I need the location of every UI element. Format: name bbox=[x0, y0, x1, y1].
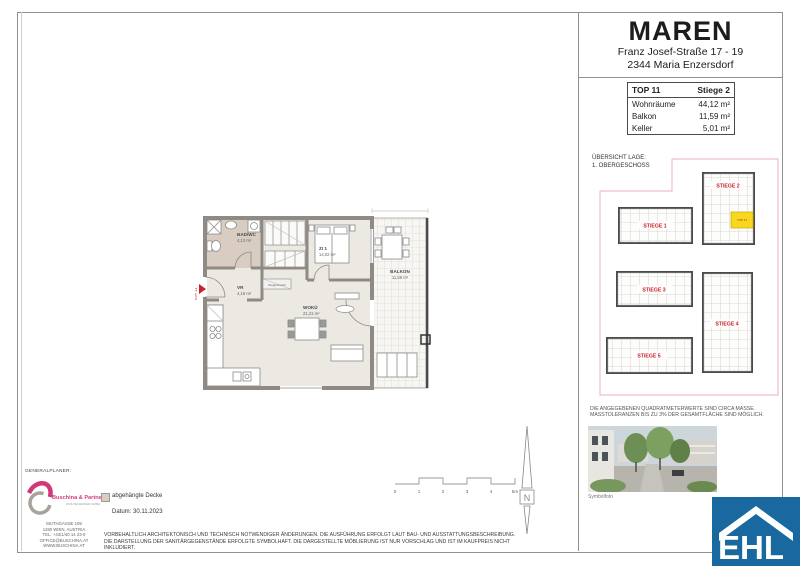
sheet-frame-inner-line bbox=[21, 12, 22, 551]
photo-caption: Symbolfoto bbox=[588, 494, 613, 500]
disclaimer-line2: DIE DARSTELLUNG DER SANITÄRGEGENSTÄNDE E… bbox=[104, 539, 534, 552]
unit-table-row: Wohnräume 44,12 m² bbox=[628, 98, 734, 110]
disclaimer-line1: VORBEHALTLICH ARCHITEKTONISCH UND TECHNI… bbox=[104, 532, 534, 539]
floor-plan: Steigschacht bbox=[195, 205, 440, 400]
room-area: 4,13 m² bbox=[237, 238, 252, 243]
svg-text:4: 4 bbox=[490, 489, 493, 494]
unit-table-header: TOP 11 Stiege 2 bbox=[628, 83, 734, 98]
building-label: STIEGE 2 bbox=[716, 184, 739, 190]
building-label: STIEGE 3 bbox=[642, 288, 665, 294]
symbol-photo bbox=[588, 426, 717, 492]
unit-stiege: Stiege 2 bbox=[697, 85, 730, 95]
sideboard bbox=[335, 293, 359, 299]
building-stiege-4: STIEGE 4 bbox=[703, 273, 752, 372]
building-stiege-5: STIEGE 5 bbox=[607, 338, 692, 373]
shaft: Steigschacht bbox=[263, 279, 291, 289]
company-name: Buschina & Partner bbox=[52, 495, 104, 501]
building-stiege-2: TOP 11 STIEGE 2 bbox=[703, 173, 754, 244]
wardrobes bbox=[265, 221, 305, 267]
washbasin bbox=[226, 221, 237, 229]
title-block-rule bbox=[579, 77, 783, 78]
unit-table-row: Keller 5,01 m² bbox=[628, 122, 734, 134]
room-area: 4,16 m² bbox=[237, 291, 252, 296]
unit-table-row: Balkon 11,59 m² bbox=[628, 110, 734, 122]
room-name: BAD/WC bbox=[237, 232, 257, 237]
room-name: WOKÜ bbox=[303, 304, 318, 310]
site-plan-overview: TOP 11 STIEGE 2 STIEGE 1 STIEGE 3 STIEGE… bbox=[588, 153, 783, 403]
area-note: DIE ANGEGEBENEN QUADRATMETERWERTE SIND C… bbox=[590, 406, 785, 419]
north-arrow: N bbox=[514, 424, 540, 536]
row-label: Wohnräume bbox=[632, 100, 675, 109]
svg-text:1: 1 bbox=[418, 489, 421, 494]
unit-entrance-label: TOP 11 bbox=[195, 287, 198, 301]
room-name: ZI 1 bbox=[319, 246, 327, 251]
building-label: STIEGE 5 bbox=[637, 354, 660, 360]
disclaimer: VORBEHALTLICH ARCHITEKTONISCH UND TECHNI… bbox=[104, 532, 534, 552]
bed bbox=[309, 225, 355, 263]
project-address-line1: Franz Josef-Straße 17 - 19 bbox=[580, 46, 781, 59]
row-value: 11,59 m² bbox=[699, 112, 730, 121]
row-value: 44,12 m² bbox=[698, 100, 730, 109]
ehl-logo-text: EHL bbox=[718, 529, 784, 566]
room-area: 11,59 m² bbox=[392, 275, 409, 280]
date-label: Datum: 30.11.2023 bbox=[112, 509, 163, 515]
building-stiege-1: STIEGE 1 bbox=[619, 208, 692, 243]
north-label: N bbox=[524, 493, 531, 503]
ceiling-legend-swatch bbox=[101, 493, 110, 502]
unit-number: TOP 11 bbox=[632, 85, 661, 95]
area-note-line2: MASSTOLERANZEN BIS ZU 3% DER GESAMTFLÄCH… bbox=[590, 412, 785, 418]
generalplaner-logo: Buschina & Partner ZIVILTECHNIKER GMBH bbox=[26, 476, 104, 520]
room-area: 14,02 m² bbox=[319, 252, 336, 257]
room-name: BALKON bbox=[390, 269, 410, 274]
row-label: Balkon bbox=[632, 112, 656, 121]
company-sub: ZIVILTECHNIKER GMBH bbox=[66, 502, 100, 506]
project-title: MAREN bbox=[580, 16, 781, 46]
svg-text:3: 3 bbox=[466, 489, 469, 494]
address-line: WWW.BUSCHINA.AT bbox=[18, 543, 110, 549]
svg-text:2: 2 bbox=[442, 489, 445, 494]
highlighted-unit-label: TOP 11 bbox=[737, 218, 747, 222]
unit-info-table: TOP 11 Stiege 2 Wohnräume 44,12 m² Balko… bbox=[627, 82, 735, 135]
generalplaner-address: MUTHGASSE 109 1190 WIEN, AUSTRIA TEL: +4… bbox=[18, 521, 110, 549]
ehl-logo: EHL bbox=[712, 497, 800, 566]
title-block: MAREN Franz Josef-Straße 17 - 19 2344 Ma… bbox=[580, 16, 781, 72]
project-address-line2: 2344 Maria Enzersdorf bbox=[580, 59, 781, 72]
console-table bbox=[336, 306, 354, 313]
svg-text:0: 0 bbox=[394, 489, 397, 494]
generalplaner-heading: GENERALPLANER: bbox=[25, 469, 71, 474]
row-label: Keller bbox=[632, 124, 652, 133]
building-label: STIEGE 4 bbox=[715, 322, 738, 328]
building-label: STIEGE 1 bbox=[643, 224, 666, 230]
sofa bbox=[331, 345, 363, 361]
row-value: 5,01 m² bbox=[703, 124, 730, 133]
room-area: 21,21 m² bbox=[303, 311, 320, 316]
entrance-opening bbox=[203, 277, 207, 297]
shaft-label: Steigschacht bbox=[268, 283, 286, 287]
washing-machine bbox=[248, 220, 260, 232]
building-stiege-3: STIEGE 3 bbox=[617, 272, 692, 306]
ceiling-legend-label: abgehängte Decke bbox=[112, 493, 162, 499]
room-name: VR bbox=[237, 285, 244, 290]
right-panel-divider bbox=[578, 12, 579, 551]
scale-labels: 0 1 2 3 4 5m bbox=[394, 489, 519, 494]
